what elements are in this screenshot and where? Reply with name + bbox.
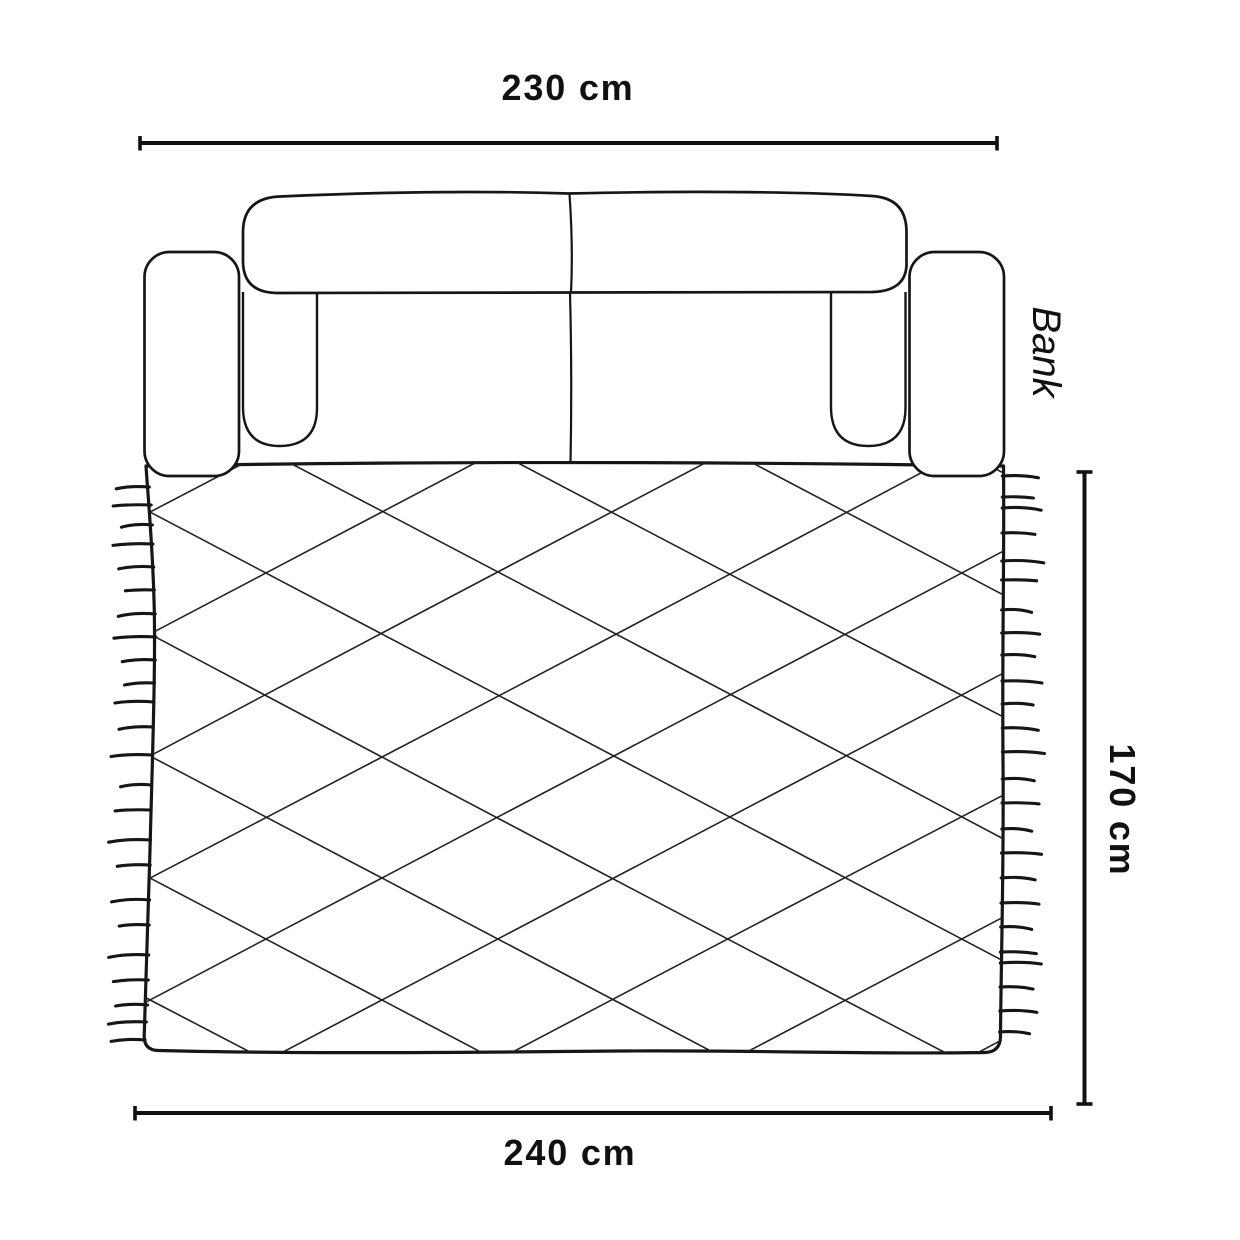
svg-text:170 cm: 170 cm bbox=[1102, 744, 1143, 877]
svg-text:240 cm: 240 cm bbox=[504, 1132, 637, 1173]
svg-text:230 cm: 230 cm bbox=[502, 67, 635, 108]
svg-text:Bank: Bank bbox=[1024, 306, 1068, 399]
